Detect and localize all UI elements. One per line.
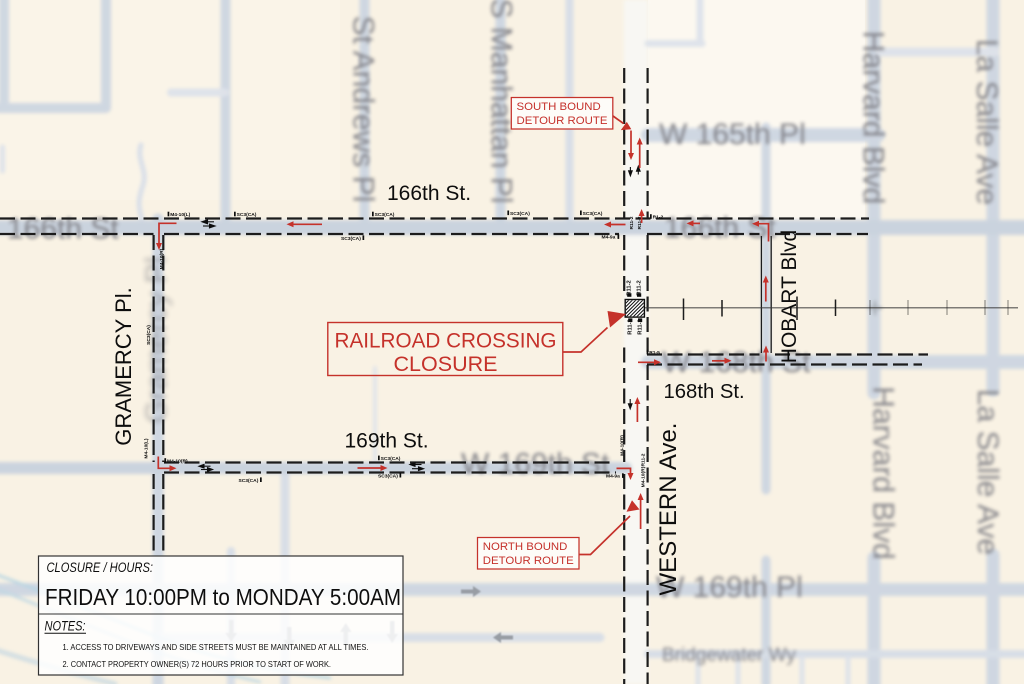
svg-text:SC3(CA): SC3(CA) bbox=[510, 211, 530, 217]
svg-text:1. ACCESS TO DRIVEWAYS AND SID: 1. ACCESS TO DRIVEWAYS AND SIDE STREETS … bbox=[63, 643, 369, 652]
svg-text:La Salle Ave: La Salle Ave bbox=[971, 389, 1004, 555]
svg-text:Harvard Blvd: Harvard Blvd bbox=[867, 386, 900, 559]
svg-text:M4-10(R): M4-10(R) bbox=[641, 466, 647, 487]
svg-text:HOBART Blvd: HOBART Blvd bbox=[778, 230, 801, 363]
svg-text:SC3(CA): SC3(CA) bbox=[375, 212, 395, 218]
svg-text:St Andrews Pl: St Andrews Pl bbox=[347, 16, 380, 203]
svg-text:M4-10(R): M4-10(R) bbox=[159, 248, 165, 269]
svg-text:SC3(CA): SC3(CA) bbox=[146, 325, 152, 345]
svg-text:NORTH BOUND: NORTH BOUND bbox=[483, 541, 568, 553]
svg-text:Harvard Blvd: Harvard Blvd bbox=[857, 31, 890, 204]
svg-text:M4-10(R): M4-10(R) bbox=[167, 459, 188, 465]
svg-text:DETOUR ROUTE: DETOUR ROUTE bbox=[483, 555, 574, 567]
svg-text:SC3(CA): SC3(CA) bbox=[341, 236, 361, 242]
svg-text:La Salle Ave: La Salle Ave bbox=[970, 39, 1003, 205]
svg-text:SC3(CA): SC3(CA) bbox=[583, 211, 603, 217]
svg-text:W 169th St: W 169th St bbox=[461, 448, 610, 481]
svg-text:Gramercy Pl: Gramercy Pl bbox=[140, 257, 173, 424]
svg-text:R11-2: R11-2 bbox=[641, 453, 647, 466]
svg-text:166th St.: 166th St. bbox=[387, 182, 471, 205]
svg-text:Bridgewater Wy: Bridgewater Wy bbox=[662, 645, 796, 666]
svg-text:166th St: 166th St bbox=[664, 212, 776, 245]
svg-text:SC3(CA): SC3(CA) bbox=[239, 478, 259, 484]
svg-text:2. CONTACT PROPERTY OWNER(S) 7: 2. CONTACT PROPERTY OWNER(S) 72 HOURS PR… bbox=[63, 660, 332, 669]
svg-text:W 165th Pl: W 165th Pl bbox=[659, 118, 806, 151]
svg-text:M4-10(R): M4-10(R) bbox=[619, 435, 625, 456]
svg-text:CLOSURE / HOURS:: CLOSURE / HOURS: bbox=[47, 560, 154, 575]
svg-text:SC3(CA): SC3(CA) bbox=[378, 473, 398, 479]
svg-text:M4-9a: M4-9a bbox=[606, 474, 620, 480]
svg-text:SOUTH BOUND: SOUTH BOUND bbox=[517, 101, 601, 113]
svg-text:M4-10(L): M4-10(L) bbox=[170, 212, 190, 218]
svg-text:RAILROAD CROSSING: RAILROAD CROSSING bbox=[335, 329, 557, 353]
svg-text:CLOSURE: CLOSURE bbox=[394, 352, 498, 376]
svg-text:M4-10(L): M4-10(L) bbox=[144, 438, 150, 458]
svg-text:GRAMERCY Pl.: GRAMERCY Pl. bbox=[111, 287, 136, 446]
svg-text:WESTERN Ave.: WESTERN Ave. bbox=[655, 423, 682, 596]
svg-text:FRIDAY 10:00PM to MONDAY 5:00: FRIDAY 10:00PM to MONDAY 5:00AM bbox=[45, 584, 401, 610]
svg-text:SC3(CA): SC3(CA) bbox=[237, 212, 257, 218]
svg-text:168th St.: 168th St. bbox=[664, 381, 745, 403]
svg-text:M4-9a: M4-9a bbox=[602, 235, 616, 241]
svg-text:R11-2: R11-2 bbox=[629, 216, 635, 229]
svg-text:169th St.: 169th St. bbox=[345, 430, 429, 453]
svg-text:NOTES:: NOTES: bbox=[45, 619, 86, 634]
svg-text:R1-5: R1-5 bbox=[649, 350, 660, 356]
svg-text:DETOUR ROUTE: DETOUR ROUTE bbox=[517, 115, 608, 127]
svg-text:R1-2: R1-2 bbox=[653, 215, 664, 221]
svg-text:SC3(CA): SC3(CA) bbox=[381, 456, 401, 462]
